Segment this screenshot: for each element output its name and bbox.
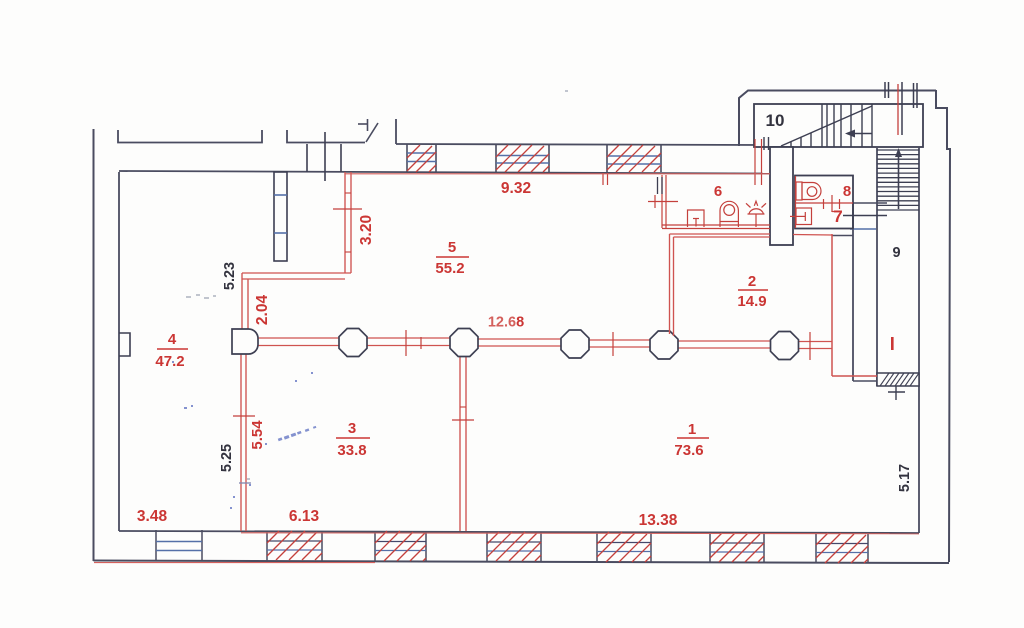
svg-text:9: 9: [892, 245, 900, 261]
svg-text:3.48: 3.48: [137, 508, 168, 525]
svg-text:6: 6: [714, 183, 722, 200]
svg-text:10: 10: [766, 111, 785, 130]
svg-text:47.2: 47.2: [155, 353, 184, 370]
svg-text:14.9: 14.9: [737, 293, 766, 310]
svg-text:9.32: 9.32: [501, 180, 531, 197]
svg-text:3.20: 3.20: [358, 215, 375, 245]
svg-text:6.13: 6.13: [289, 508, 320, 525]
svg-text:5.17: 5.17: [897, 464, 913, 492]
svg-text:1: 1: [688, 421, 696, 438]
svg-text:12.68: 12.68: [488, 315, 524, 331]
svg-text:2: 2: [748, 273, 756, 290]
svg-text:33.8: 33.8: [337, 442, 366, 459]
svg-text:5.25: 5.25: [219, 444, 235, 472]
svg-text:8: 8: [843, 183, 851, 200]
svg-text:3: 3: [348, 420, 356, 437]
svg-text:5.54: 5.54: [249, 420, 266, 450]
svg-text:5.23: 5.23: [222, 262, 238, 290]
svg-text:13.38: 13.38: [639, 512, 678, 529]
svg-text:2.04: 2.04: [254, 295, 271, 326]
svg-text:4: 4: [168, 331, 177, 348]
svg-text:5: 5: [448, 239, 456, 256]
svg-text:73.6: 73.6: [674, 442, 703, 459]
svg-text:7: 7: [833, 207, 842, 226]
svg-text:55.2: 55.2: [435, 260, 464, 277]
